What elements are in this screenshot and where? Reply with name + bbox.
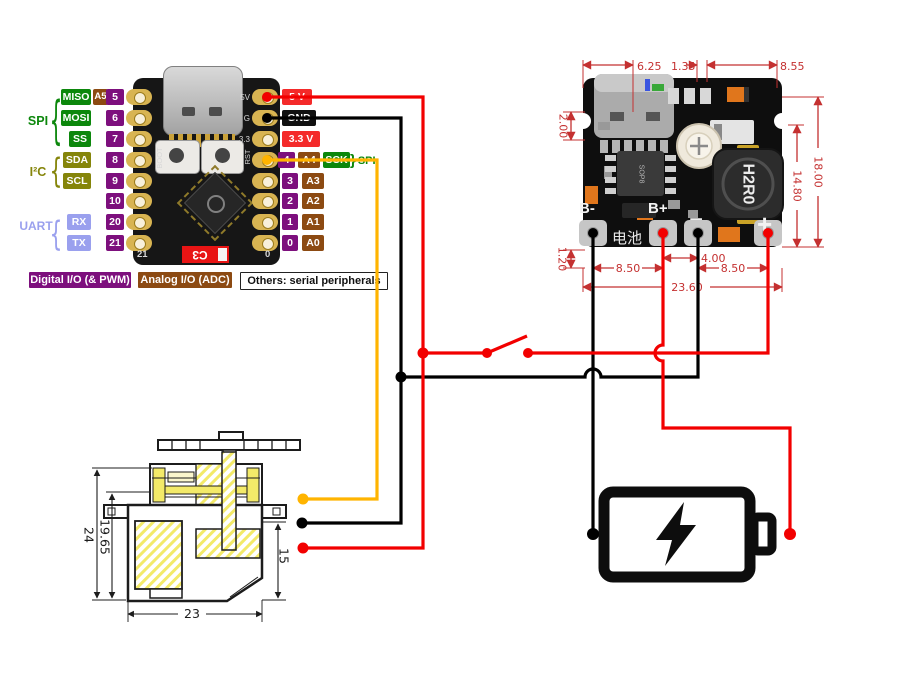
- usb-solder-row: [600, 140, 668, 153]
- potentiometer: [677, 124, 721, 168]
- module-pads: [579, 220, 782, 246]
- pin-label-a2: A2: [302, 193, 324, 209]
- pin-label-a3: A3: [302, 173, 324, 189]
- pad-label-b-plus: B+: [648, 200, 668, 217]
- pin-label-mosi: MOSI: [61, 110, 91, 126]
- switch-throw: [523, 348, 533, 358]
- servo-bottom-tab: [150, 589, 182, 598]
- servo-flange-left: [104, 505, 128, 518]
- pad-hole: [134, 196, 146, 208]
- module-dimension-labels: 6.25 1.35 8.55 2.00 1.20 14.80 18.00 8.5…: [556, 60, 825, 294]
- pad-hole: [262, 176, 274, 188]
- pad-hole: [134, 238, 146, 250]
- pin-label-a0: A0: [302, 235, 324, 251]
- sck-spi-group: } SPI: [350, 152, 376, 169]
- usb-contact: [209, 107, 222, 116]
- pad-hole: [134, 217, 146, 229]
- pad-hole: [262, 238, 274, 250]
- pad-hole: [262, 196, 274, 208]
- pin-label-9: 9: [106, 173, 124, 189]
- switch-pole: [482, 348, 492, 358]
- wire-servo-signal: [267, 160, 377, 499]
- pin-label-ss: SS: [69, 131, 91, 147]
- dot-servo-power: [298, 543, 309, 554]
- pin-label-a4: A4: [298, 152, 320, 168]
- servo-gear: [153, 468, 165, 502]
- dot-servo-gnd: [297, 518, 308, 529]
- module-pcb: [583, 78, 782, 247]
- sop8-chip: SOP8: [605, 151, 676, 196]
- servo-body: [128, 505, 262, 601]
- servo-dimensions: [92, 468, 286, 622]
- dim-1-20: 1.20: [556, 247, 569, 272]
- esp32-usb-c-connector: [163, 66, 243, 136]
- lightning-bolt-icon: [656, 502, 696, 566]
- blue-led: [645, 79, 650, 91]
- junction-red: [418, 348, 429, 359]
- dim-8-50-right: 8.50: [721, 262, 746, 275]
- dot-battery-minus: [587, 528, 599, 540]
- reset-button-cap: [215, 148, 230, 163]
- servo-motor: [135, 521, 182, 589]
- uart-brace-icon: {: [50, 214, 63, 254]
- pin-label-3v3: 3.3 V: [282, 131, 320, 147]
- dim-24: 24: [82, 527, 97, 543]
- pad-hole: [134, 155, 146, 167]
- pad-hole: [134, 134, 146, 146]
- battery-terminal: [754, 517, 772, 551]
- pin-label-6: 6: [106, 110, 124, 126]
- battery-icon: [604, 492, 772, 577]
- module-usb-c: [594, 74, 674, 138]
- servo-gear-hatched: [196, 464, 224, 505]
- wire-bplus-to-battery: [655, 233, 790, 534]
- c3-marking-text: C3: [182, 246, 218, 263]
- i2c-group-label: I²C: [30, 165, 47, 179]
- inductor: H2R0: [713, 145, 783, 224]
- wire-gnd-to-module-out-minus: [401, 233, 698, 377]
- servo-dimension-labels: 24 19.65 15 23: [82, 519, 292, 621]
- pin-label-a1: A1: [302, 214, 324, 230]
- pin-label-21: 21: [106, 235, 124, 251]
- boot-button-cap: [169, 148, 184, 163]
- pin-group-brackets: { { { SPI I²C UART: [19, 91, 62, 254]
- pin-label-4: 4: [278, 152, 295, 168]
- inductor-marking: H2R0: [740, 164, 757, 205]
- dim-4-00: 4.00: [701, 252, 726, 265]
- dim-6-25: 6.25: [637, 60, 662, 73]
- pin-label-scl: SCL: [63, 173, 91, 189]
- servo-gear-lines: [152, 478, 260, 497]
- pin-label-2: 2: [282, 193, 298, 209]
- dot-module-b-minus: [588, 228, 598, 238]
- pad-hole: [134, 92, 146, 104]
- module-notch-right: [774, 113, 790, 129]
- pin-label-5v: 5 V: [282, 89, 312, 105]
- module-notch-left: [575, 113, 591, 129]
- c3-marking: C3: [182, 246, 229, 263]
- legend-others: Others: serial peripherals: [240, 272, 388, 290]
- dot-module-b-plus: [658, 228, 668, 238]
- pin-label-tx: TX: [67, 235, 91, 251]
- wire-switch-to-module-out-plus: [423, 233, 768, 353]
- servo-gear: [247, 468, 259, 502]
- wiring-diagram: C3 MISO A5 5 MOSI 6 SS 7 SDA 8 SCL 9 10 …: [0, 0, 901, 680]
- pin-label-7: 7: [106, 131, 124, 147]
- pad-hole: [262, 217, 274, 229]
- servo-flange-right: [262, 505, 286, 518]
- usb-contact: [182, 107, 195, 116]
- pin-label-sck: SCK: [323, 152, 350, 168]
- pin-label-3: 3: [282, 173, 298, 189]
- pad-hole: [262, 92, 274, 104]
- module-usb-shine: [594, 74, 674, 92]
- i2c-brace-icon: {: [50, 151, 63, 191]
- dim-8-55: 8.55: [780, 60, 805, 73]
- charger-module: SOP8 H2R0 B: [575, 74, 790, 247]
- dim-8-50-left: 8.50: [616, 262, 641, 275]
- pad-label-plus: +: [757, 209, 772, 239]
- pad-hole: [262, 113, 274, 125]
- pad-hole: [262, 155, 274, 167]
- pin-label-sda: SDA: [63, 152, 91, 168]
- legend-analog-io: Analog I/O (ADC): [138, 272, 232, 288]
- pad-hole: [134, 113, 146, 125]
- servo-horn-ticks: [172, 440, 286, 450]
- servo-bevel-line: [230, 577, 258, 597]
- servo-horn: [158, 440, 300, 450]
- spi-brace-right: }: [350, 152, 356, 169]
- pad-hole: [134, 176, 146, 188]
- uart-group-label: UART: [19, 219, 53, 233]
- c3-marking-square: [218, 248, 227, 261]
- pin-label-1: 1: [282, 214, 298, 230]
- dot-module-out-plus: [763, 228, 773, 238]
- servo-gear-bar: [165, 486, 247, 494]
- dim-1-35: 1.35: [671, 60, 696, 73]
- dim-15: 15: [277, 548, 292, 564]
- servo-flange-slot: [273, 508, 280, 515]
- module-dimensions: [563, 60, 824, 292]
- legend-digital-io: Digital I/O (& PWM): [29, 272, 131, 288]
- servo-gear: [168, 472, 194, 482]
- servo-output-shaft: [222, 452, 236, 550]
- pin-label-gnd: GND: [282, 110, 316, 126]
- pad-label-minus: −: [689, 206, 703, 233]
- junction-black: [396, 372, 407, 383]
- pin-label-miso: MISO: [61, 89, 91, 105]
- spi-group-label: SPI: [28, 114, 48, 128]
- dot-module-out-minus: [693, 228, 703, 238]
- pad-hole: [262, 134, 274, 146]
- spi-group-label-right: SPI: [358, 155, 376, 167]
- sop8-marking: SOP8: [638, 165, 645, 184]
- pad-label-b-minus: B-: [579, 200, 595, 217]
- dim-14-80: 14.80: [791, 170, 804, 202]
- usb-contact: [610, 112, 624, 121]
- dot-battery-plus: [784, 528, 796, 540]
- usb-contact: [646, 112, 660, 121]
- pin-label-8: 8: [106, 152, 124, 168]
- pin-label-10: 10: [106, 193, 124, 209]
- servo-gearbox: [150, 464, 262, 505]
- green-led: [652, 84, 664, 91]
- pin-label-rx: RX: [67, 214, 91, 230]
- pin-label-5: 5: [106, 89, 124, 105]
- pin-label-20: 20: [106, 214, 124, 230]
- dim-2-00: 2.00: [557, 114, 570, 139]
- dot-servo-signal: [298, 494, 309, 505]
- smd-components: [585, 87, 754, 242]
- servo-horn-hub: [219, 432, 243, 440]
- dim-18-00: 18.00: [812, 156, 825, 188]
- servo-drawing: [104, 432, 300, 601]
- servo-flange-slot: [108, 508, 115, 515]
- pin-label-0: 0: [282, 235, 298, 251]
- module-pad-labels: B- B+ − + 电池: [579, 200, 772, 247]
- servo-shaft-post: [223, 450, 236, 464]
- dim-23-60: 23.60: [671, 281, 703, 294]
- dim-19-65: 19.65: [98, 519, 113, 555]
- pad-label-battery-cn: 电池: [612, 230, 642, 247]
- dim-23: 23: [184, 606, 200, 621]
- servo-inner-block: [196, 529, 260, 558]
